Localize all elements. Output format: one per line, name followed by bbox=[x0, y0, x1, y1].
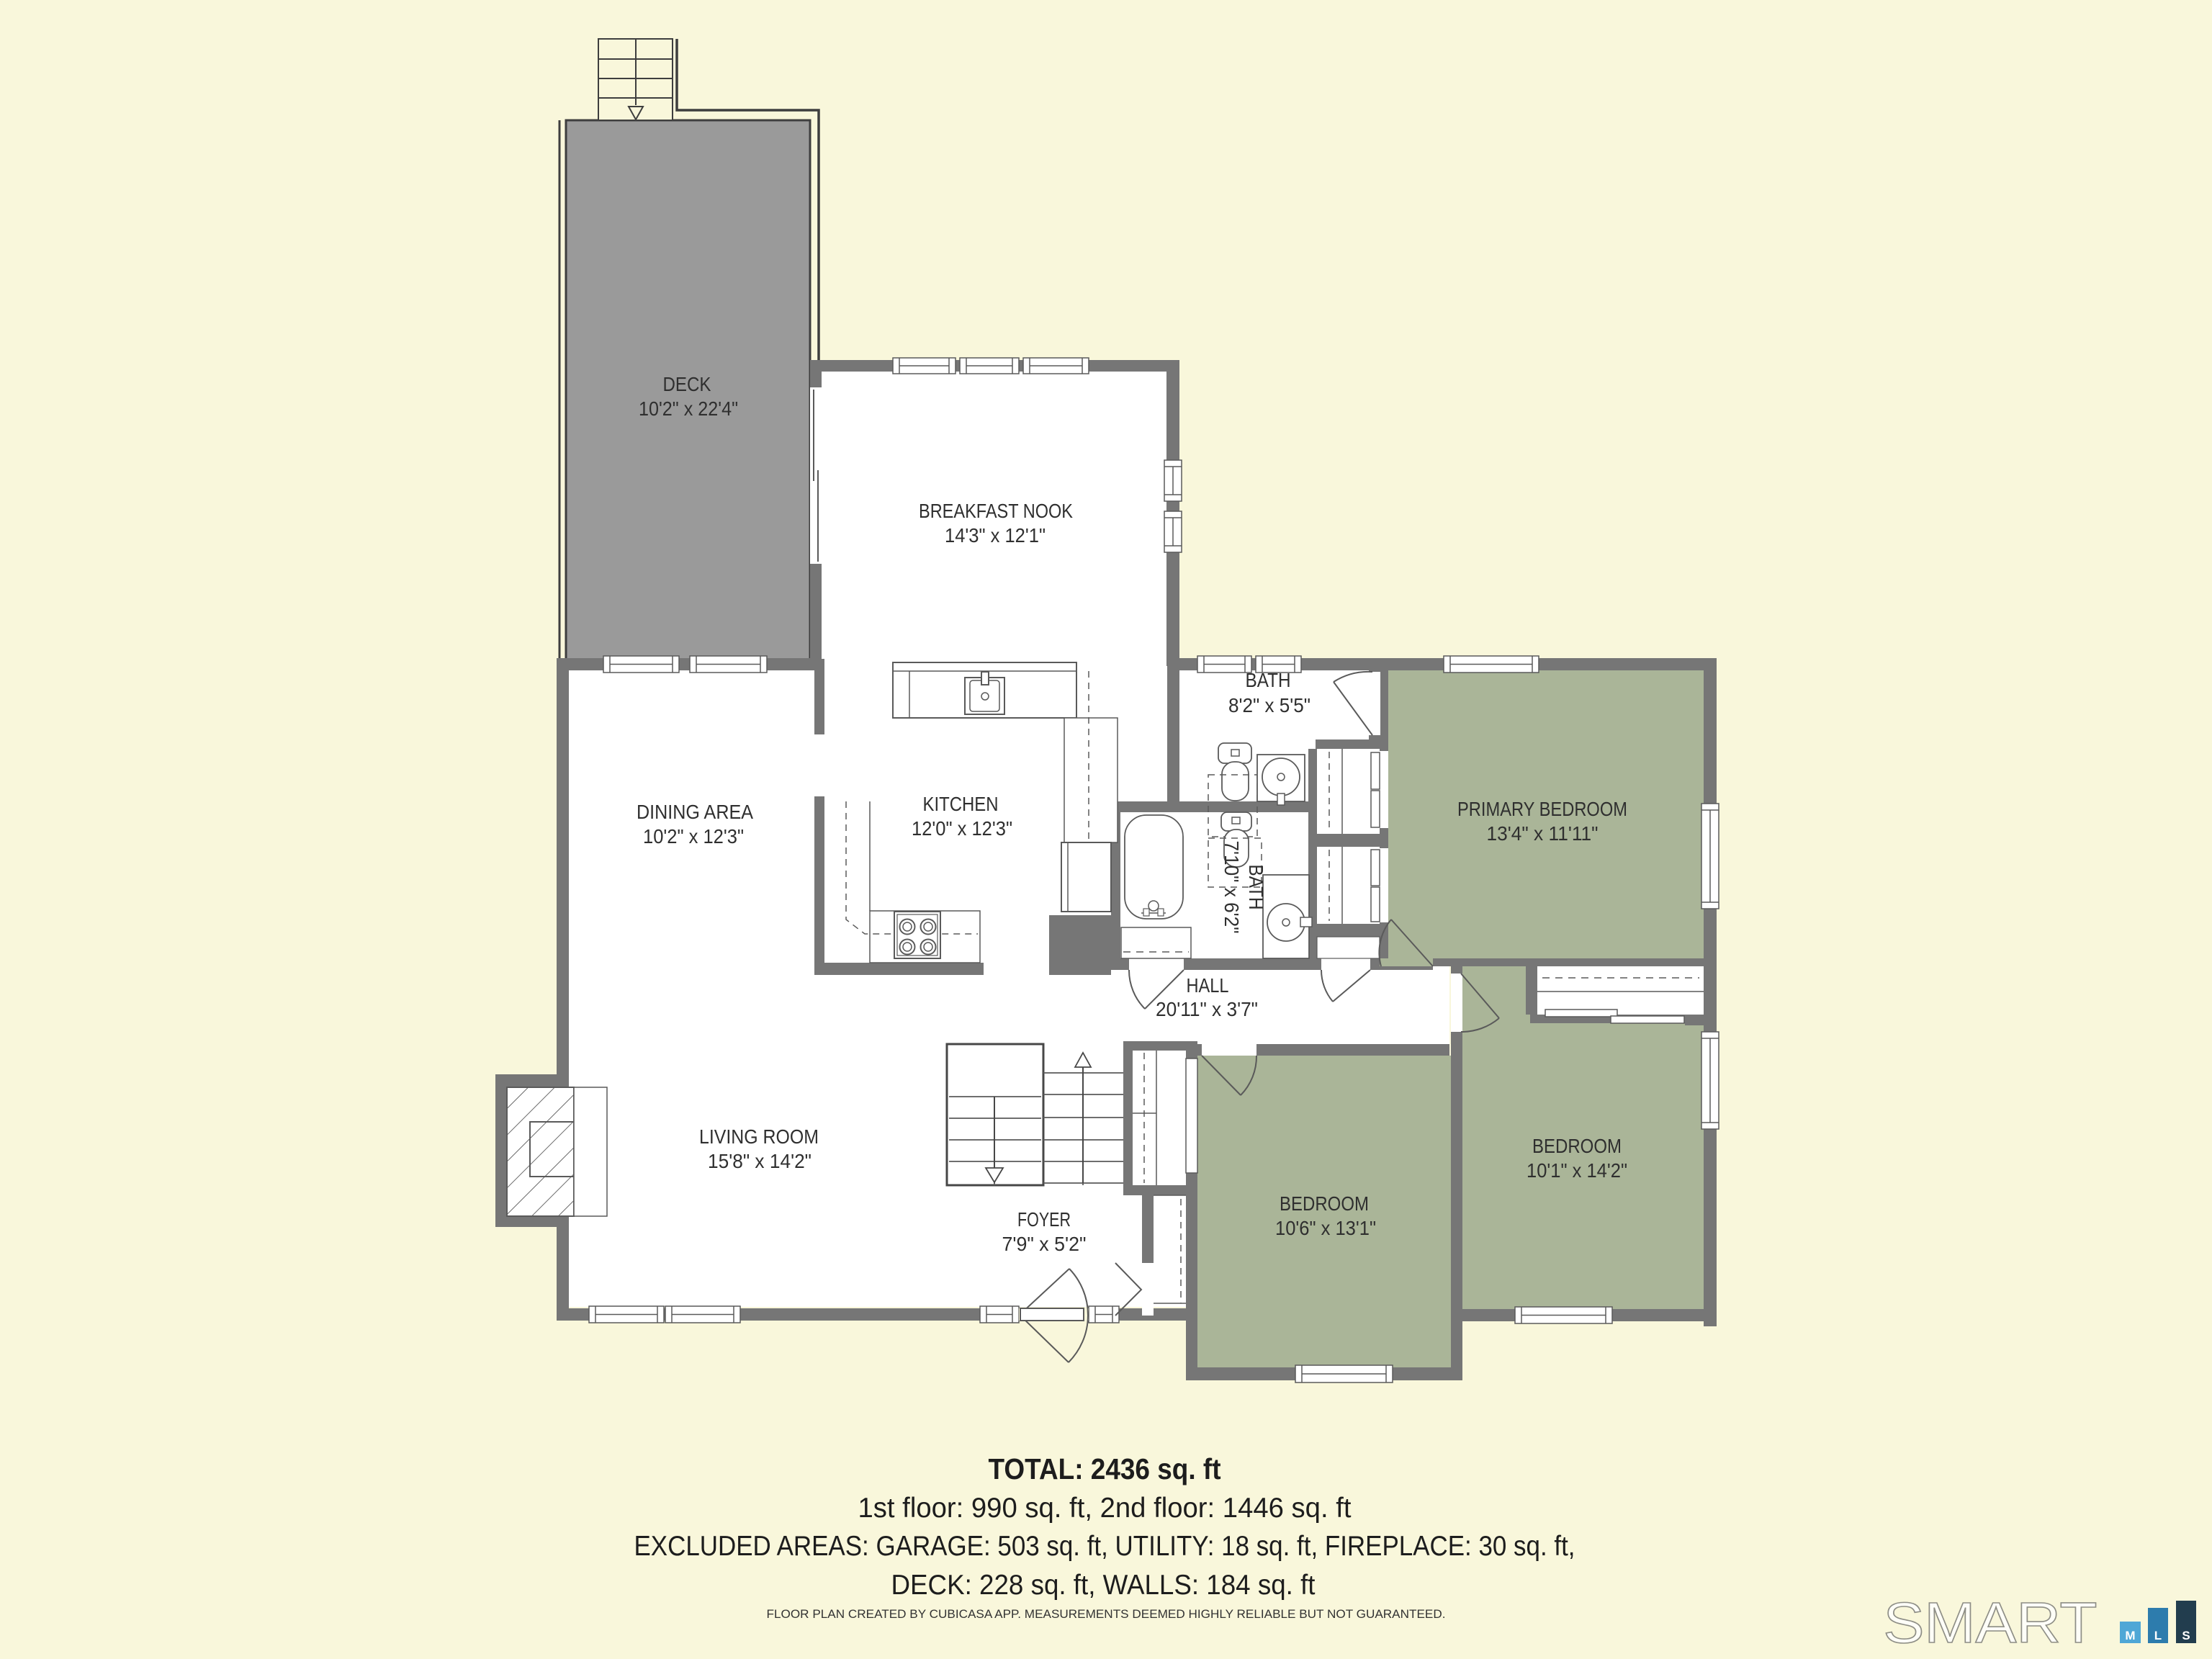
svg-text:1st floor: 990 sq. ft, 2nd flo: 1st floor: 990 sq. ft, 2nd floor: 1446 s… bbox=[858, 1493, 1352, 1524]
svg-text:BATH: BATH bbox=[1245, 865, 1267, 910]
svg-text:8'2" x 5'5": 8'2" x 5'5" bbox=[1228, 694, 1310, 716]
svg-text:FLOOR PLAN CREATED BY CUBICASA: FLOOR PLAN CREATED BY CUBICASA APP. MEAS… bbox=[767, 1608, 1446, 1621]
svg-text:BEDROOM: BEDROOM bbox=[1532, 1135, 1622, 1157]
svg-text:10'1" x 14'2": 10'1" x 14'2" bbox=[1527, 1159, 1627, 1182]
svg-text:7'10" x 6'2": 7'10" x 6'2" bbox=[1220, 841, 1243, 934]
svg-text:EXCLUDED AREAS: GARAGE: 503 sq: EXCLUDED AREAS: GARAGE: 503 sq. ft, UTIL… bbox=[634, 1531, 1575, 1562]
svg-text:PRIMARY BEDROOM: PRIMARY BEDROOM bbox=[1457, 798, 1627, 820]
svg-text:15'8" x 14'2": 15'8" x 14'2" bbox=[708, 1150, 811, 1172]
svg-text:BREAKFAST NOOK: BREAKFAST NOOK bbox=[919, 500, 1073, 522]
svg-text:10'6" x 13'1": 10'6" x 13'1" bbox=[1275, 1217, 1376, 1239]
svg-text:L: L bbox=[2154, 1629, 2162, 1642]
svg-text:DINING AREA: DINING AREA bbox=[637, 801, 753, 823]
svg-text:DECK: 228 sq. ft, WALLS: 184 s: DECK: 228 sq. ft, WALLS: 184 sq. ft bbox=[891, 1570, 1316, 1601]
svg-text:FOYER: FOYER bbox=[1017, 1208, 1071, 1231]
svg-text:13'4" x 11'11": 13'4" x 11'11" bbox=[1487, 822, 1599, 845]
svg-text:TOTAL: 2436 sq. ft: TOTAL: 2436 sq. ft bbox=[989, 1452, 1221, 1485]
svg-text:7'9" x 5'2": 7'9" x 5'2" bbox=[1002, 1233, 1087, 1255]
svg-text:DECK: DECK bbox=[663, 373, 711, 395]
svg-text:HALL: HALL bbox=[1187, 974, 1229, 997]
svg-text:20'11" x 3'7": 20'11" x 3'7" bbox=[1156, 998, 1258, 1020]
svg-text:LIVING ROOM: LIVING ROOM bbox=[699, 1125, 819, 1148]
svg-text:14'3" x 12'1": 14'3" x 12'1" bbox=[945, 524, 1046, 547]
svg-text:KITCHEN: KITCHEN bbox=[923, 793, 999, 815]
svg-text:12'0" x 12'3": 12'0" x 12'3" bbox=[912, 817, 1012, 840]
svg-text:S: S bbox=[2182, 1629, 2190, 1642]
svg-text:BATH: BATH bbox=[1246, 669, 1291, 691]
svg-text:10'2" x 22'4": 10'2" x 22'4" bbox=[639, 397, 738, 420]
svg-text:SMART: SMART bbox=[1884, 1591, 2098, 1655]
svg-text:BEDROOM: BEDROOM bbox=[1280, 1192, 1369, 1215]
svg-text:M: M bbox=[2125, 1629, 2135, 1642]
svg-text:10'2" x 12'3": 10'2" x 12'3" bbox=[643, 825, 744, 848]
